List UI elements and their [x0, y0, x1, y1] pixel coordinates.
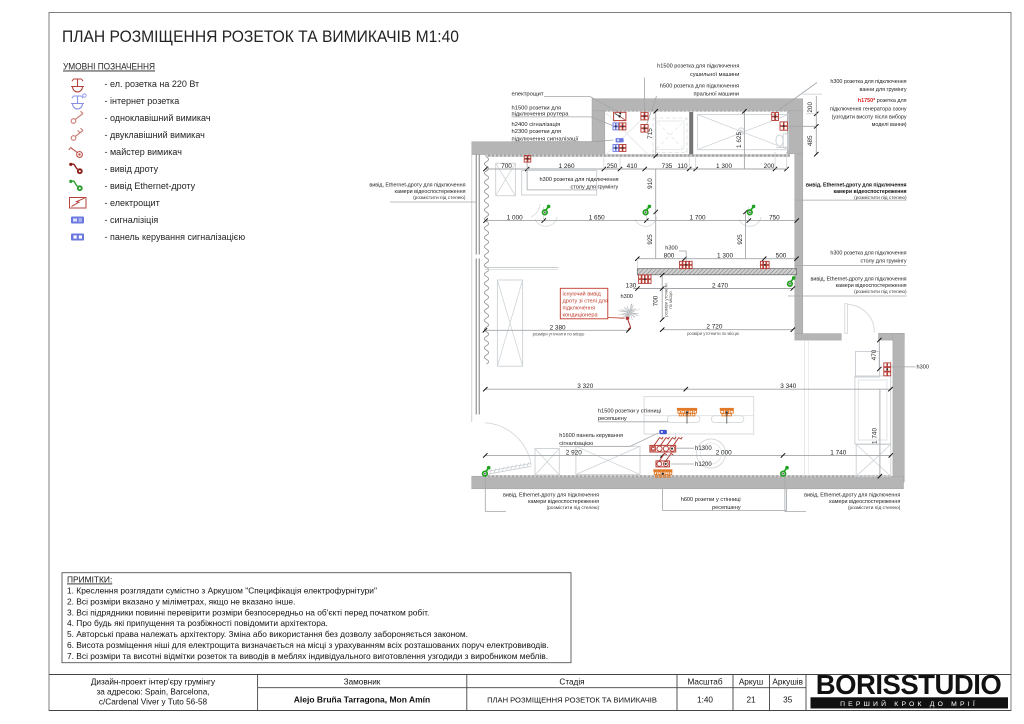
svg-text:3 340: 3 340: [780, 383, 796, 390]
svg-text:200: 200: [764, 163, 775, 170]
svg-text:сігналізацією: сігналізацією: [559, 441, 593, 447]
svg-text:вивід, Ethernet-дроту для підк: вивід, Ethernet-дроту для підключення: [503, 493, 599, 499]
svg-text:h1750* розетка для: h1750* розетка для: [858, 98, 907, 104]
svg-text:столу для грумінгу: столу для грумінгу: [860, 259, 906, 265]
svg-text:ванни для грумінгу: ванни для грумінгу: [860, 87, 907, 93]
svg-text:пральної машини: пральної машини: [693, 91, 739, 97]
svg-text:1. Креслення розглядати суміст: 1. Креслення розглядати сумістно з Аркуш…: [67, 586, 377, 596]
svg-text:h300 розетка для підключення: h300 розетка для підключення: [830, 79, 906, 85]
svg-text:ПРИМІТКИ:: ПРИМІТКИ:: [67, 575, 112, 585]
svg-text:3. Всі підрядники повинні пере: 3. Всі підрядники повинні перевірити роз…: [67, 607, 429, 617]
svg-text:Дизайн-проект інтер'єру грумін: Дизайн-проект інтер'єру грумінгу: [91, 678, 216, 687]
svg-text:- одноклавішний вимикач: - одноклавішний вимикач: [105, 113, 211, 123]
svg-text:- двуклавішний вимикач: - двуклавішний вимикач: [105, 130, 206, 140]
svg-text:h300: h300: [917, 365, 929, 371]
svg-text:- електрощит: - електрощит: [105, 198, 160, 208]
svg-text:(розмістити під стелею): (розмістити під стелею): [848, 505, 901, 511]
svg-text:1 740: 1 740: [871, 428, 878, 444]
svg-text:Стадія: Стадія: [559, 678, 584, 687]
svg-text:вивід, Ethernet-дроту для підк: вивід, Ethernet-дроту для підключення: [810, 277, 906, 283]
svg-text:ресепшену: ресепшену: [598, 416, 627, 422]
svg-text:2 920: 2 920: [566, 449, 582, 456]
svg-text:h1500 розетка для підключення: h1500 розетка для підключення: [657, 64, 739, 70]
svg-text:електрощит: електрощит: [512, 92, 544, 98]
svg-text:h300: h300: [620, 294, 632, 300]
svg-text:925: 925: [737, 234, 744, 245]
svg-text:камери відеоспостереження: камери відеоспостереження: [829, 499, 900, 505]
svg-text:вивід, Ethernet-дроту для підк: вивід, Ethernet-дроту для підключення: [806, 182, 907, 188]
svg-text:500: 500: [776, 253, 787, 260]
svg-text:1 740: 1 740: [830, 449, 846, 456]
svg-text:130: 130: [626, 283, 637, 290]
svg-text:410: 410: [627, 163, 638, 170]
svg-text:розміри уточнити по місцю: розміри уточнити по місцю: [687, 331, 739, 336]
svg-text:h300 розетка для підключення: h300 розетка для підключення: [830, 251, 906, 257]
svg-text:1 650: 1 650: [589, 215, 605, 222]
svg-text:ПЛАН РОЗМІЩЕННЯ РОЗЕТОК ТА ВИМ: ПЛАН РОЗМІЩЕННЯ РОЗЕТОК ТА ВИМИКАЧІВ М1:…: [62, 27, 459, 46]
svg-text:1:40: 1:40: [697, 696, 713, 705]
svg-text:Замовник: Замовник: [344, 678, 381, 687]
svg-text:Alejo Bruña Tarragona, Mon Amí: Alejo Bruña Tarragona, Mon Amín: [294, 695, 430, 705]
svg-text:750: 750: [769, 215, 780, 222]
svg-text:h2300 розетки для: h2300 розетки для: [512, 129, 562, 135]
svg-text:1 625: 1 625: [736, 132, 743, 148]
svg-text:- вивід Ethernet-дроту: - вивід Ethernet-дроту: [105, 181, 196, 191]
svg-text:h300: h300: [665, 245, 677, 251]
svg-text:Масштаб: Масштаб: [687, 678, 722, 687]
svg-text:дроту зі стелі для: дроту зі стелі для: [563, 299, 609, 305]
svg-text:вивід, Ethernet-дроту для підк: вивід, Ethernet-дроту для підключення: [369, 182, 465, 188]
svg-text:Аркушів: Аркушів: [772, 678, 803, 687]
svg-text:Аркуш: Аркуш: [739, 678, 763, 687]
svg-text:- вивід дроту: - вивід дроту: [105, 164, 159, 174]
svg-text:BORISSTUDIO: BORISSTUDIO: [816, 669, 1002, 700]
svg-text:- ел. розетка на 220 Вт: - ел. розетка на 220 Вт: [105, 79, 200, 89]
svg-text:кондиціонера: кондиціонера: [563, 313, 599, 319]
svg-text:h300 розетка для підключення: h300 розетка для підключення: [539, 177, 618, 183]
svg-text:(розмістити під стелею): (розмістити під стелею): [547, 505, 600, 511]
svg-text:h1600 панель керування: h1600 панель керування: [559, 433, 623, 439]
svg-text:існуючий вивід: існуючий вивід: [563, 291, 602, 298]
svg-text:2. Всі розміри вказано у мілім: 2. Всі розміри вказано у міліметрах, якщ…: [67, 596, 295, 606]
svg-text:- інтернет розетка: - інтернет розетка: [105, 96, 180, 106]
svg-text:7. Всі розміри та висотні відм: 7. Всі розміри та висотні відмітки розет…: [67, 651, 548, 661]
svg-text:110: 110: [677, 163, 688, 170]
svg-text:h1200: h1200: [695, 462, 712, 468]
svg-text:1 700: 1 700: [690, 215, 706, 222]
svg-text:21: 21: [746, 696, 756, 705]
svg-text:розміри уточнити по місцю: розміри уточнити по місцю: [533, 331, 585, 336]
svg-text:моделі ванни): моделі ванни): [872, 122, 907, 128]
svg-text:h1500 розетки у стінниці: h1500 розетки у стінниці: [598, 408, 661, 414]
svg-text:2 380: 2 380: [550, 324, 566, 331]
svg-text:УМОВНІ ПОЗНАЧЕННЯ: УМОВНІ ПОЗНАЧЕННЯ: [63, 62, 155, 72]
svg-text:5. Авторські права належать ар: 5. Авторські права належать архітектору.…: [67, 629, 468, 639]
svg-text:(розмістити під стелею): (розмістити під стелею): [854, 289, 907, 295]
svg-text:h600 розетки у стінниці: h600 розетки у стінниці: [681, 497, 741, 503]
svg-text:камери відеоспостереження: камери відеоспостереження: [528, 499, 599, 505]
svg-text:ПЛАН РОЗМІЩЕННЯ РОЗЕТОК ТА ВИМ: ПЛАН РОЗМІЩЕННЯ РОЗЕТОК ТА ВИМИКАЧІВ: [487, 696, 657, 705]
svg-text:925: 925: [647, 234, 654, 245]
svg-text:2 000: 2 000: [716, 449, 732, 456]
svg-text:1 000: 1 000: [507, 215, 523, 222]
svg-text:735: 735: [662, 163, 673, 170]
svg-text:(розмістити під стелею): (розмістити під стелею): [413, 195, 466, 201]
svg-text:1 300: 1 300: [716, 163, 732, 170]
svg-text:800: 800: [664, 253, 675, 260]
svg-text:по місцю: по місцю: [668, 291, 673, 308]
svg-text:470: 470: [871, 349, 878, 360]
svg-text:- панель керування сигналізаці: - панель керування сигналізацією: [105, 232, 246, 242]
svg-text:камери відеоспостереження: камери відеоспостереження: [833, 189, 906, 195]
svg-text:2 470: 2 470: [712, 283, 728, 290]
svg-text:h2400 сігналізація: h2400 сігналізація: [512, 122, 561, 128]
svg-text:250: 250: [607, 163, 618, 170]
svg-text:ресепшену: ресепшену: [712, 505, 741, 511]
svg-text:- майстер вимикач: - майстер вимикач: [105, 147, 183, 157]
svg-text:сушильної машини: сушильної машини: [690, 72, 739, 78]
svg-text:підключення: підключення: [563, 306, 596, 312]
svg-text:(узгодити висоту після вибору: (узгодити висоту після вибору: [832, 114, 907, 120]
svg-text:2 720: 2 720: [706, 324, 722, 331]
svg-text:35: 35: [783, 696, 793, 705]
svg-text:ПЕРШИЙ КРОК ДО МРІЇ: ПЕРШИЙ КРОК ДО МРІЇ: [840, 699, 978, 708]
svg-text:h1300: h1300: [695, 446, 712, 452]
svg-text:1 300: 1 300: [717, 253, 733, 260]
svg-text:камери відеоспостереження: камери відеоспостереження: [394, 189, 465, 195]
svg-text:вивід, Ethernet-дроту для підк: вивід, Ethernet-дроту для підключення: [804, 493, 900, 499]
svg-text:700: 700: [653, 295, 660, 306]
svg-text:камери відеоспостереження: камери відеоспостереження: [836, 283, 907, 289]
svg-text:700: 700: [501, 163, 512, 170]
svg-text:1 260: 1 260: [559, 163, 575, 170]
svg-text:підключення генератора озону: підключення генератора озону: [830, 106, 907, 112]
svg-text:485: 485: [807, 135, 814, 146]
svg-text:6. Висота розміщення ніші для: 6. Висота розміщення ніші для електрощит…: [67, 640, 549, 650]
svg-text:200: 200: [807, 102, 814, 113]
svg-text:за адресою: Spain, Barcelona,: за адресою: Spain, Barcelona,: [96, 688, 209, 697]
svg-text:4. Про будь які припущення та: 4. Про будь які припущення та розбіжност…: [67, 618, 328, 628]
svg-text:h500 розетка для підключення: h500 розетка для підключення: [660, 83, 739, 89]
svg-text:910: 910: [647, 178, 654, 189]
svg-text:c/Cardenal Viver y Tuto 56-58: c/Cardenal Viver y Tuto 56-58: [99, 698, 208, 707]
svg-text:3 320: 3 320: [577, 383, 593, 390]
svg-text:- сигналізіція: - сигналізіція: [105, 215, 159, 225]
